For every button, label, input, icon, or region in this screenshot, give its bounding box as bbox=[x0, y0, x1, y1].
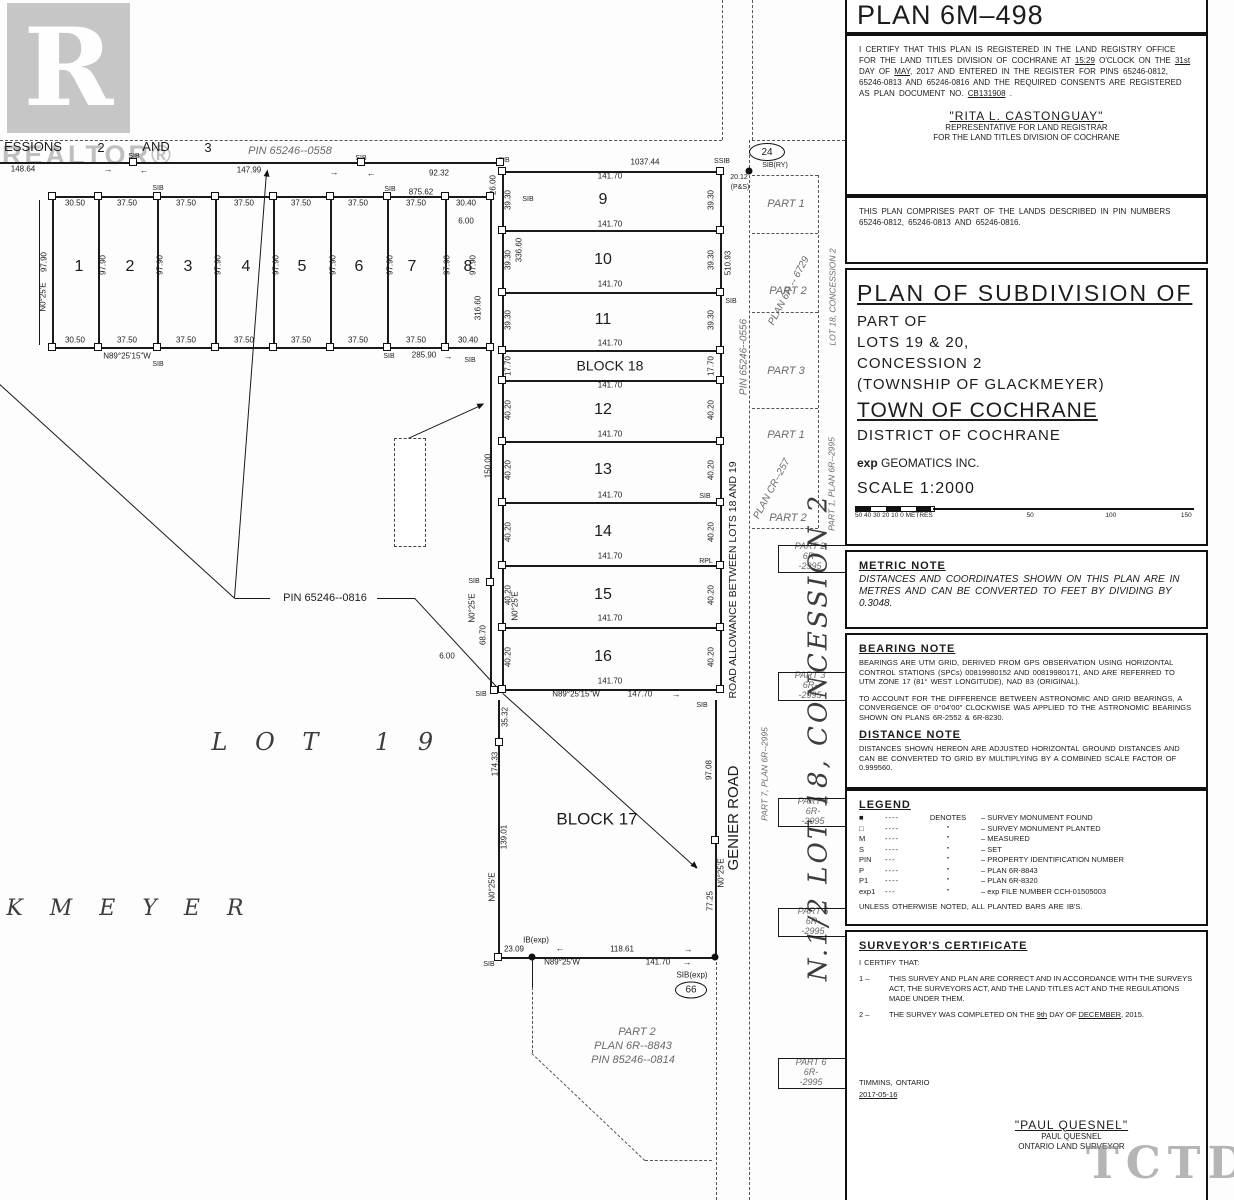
boundary-line bbox=[778, 908, 845, 909]
dimension: 37.50 bbox=[291, 200, 311, 209]
dimension: 40.20 bbox=[708, 522, 717, 542]
legend-rows: ■----DENOTES– SURVEY MONUMENT FOUND□----… bbox=[847, 813, 1206, 897]
dimension: 37.50 bbox=[176, 200, 196, 209]
dimension: 37.50 bbox=[234, 200, 254, 209]
reference-badge: 66 bbox=[675, 982, 707, 999]
dimension: 141.70 bbox=[598, 221, 622, 230]
dimension: 316.60 bbox=[475, 296, 484, 320]
dimension: 141.70 bbox=[598, 340, 622, 349]
monument-planted-marker bbox=[269, 192, 277, 200]
monument-planted-marker bbox=[94, 192, 102, 200]
part-label: PART 1 bbox=[767, 429, 805, 441]
part-label: PART 6 6R--2995 bbox=[794, 1058, 828, 1088]
monument-planted-marker bbox=[129, 158, 137, 166]
lot-number: 2 bbox=[126, 258, 135, 276]
dimension: 6.00 bbox=[439, 653, 455, 662]
dim-arrow: ← bbox=[556, 944, 565, 954]
metric-note-heading: METRIC NOTE bbox=[859, 560, 1206, 572]
dimension: 30.50 bbox=[65, 200, 85, 209]
monument-planted-marker bbox=[498, 623, 506, 631]
boundary-line bbox=[752, 140, 845, 141]
lot-number: 14 bbox=[594, 523, 612, 541]
certificate-date: 2017-05-16 bbox=[859, 1090, 939, 1100]
scale-bar: 50 40 30 20 10 0 METRES 50 100 150 bbox=[855, 504, 1198, 520]
boundary-line bbox=[157, 196, 159, 347]
monument-planted-marker bbox=[48, 192, 56, 200]
boundary-line bbox=[532, 957, 533, 987]
scale-tick: 100 bbox=[1105, 512, 1116, 519]
lot-number: 12 bbox=[594, 401, 612, 419]
leader-line bbox=[531, 1053, 645, 1161]
monument-planted-marker bbox=[716, 561, 724, 569]
boundary-line bbox=[778, 908, 779, 936]
dimension: 141.70 bbox=[598, 492, 622, 501]
dimension: 141.70 bbox=[598, 173, 622, 182]
dimension: 39.30 bbox=[505, 310, 514, 330]
dim-arrow: → bbox=[444, 352, 453, 362]
dimension: 40.20 bbox=[505, 522, 514, 542]
title-line: (TOWNSHIP OF GLACKMEYER) bbox=[857, 376, 1206, 393]
dimension: 17.70 bbox=[708, 356, 717, 376]
registrar-signature: "RITA L. CASTONGUAY" REPRESENTATIVE FOR … bbox=[847, 109, 1206, 143]
boundary-line bbox=[273, 196, 275, 347]
dimension: 40.20 bbox=[708, 400, 717, 420]
boundary-line bbox=[778, 672, 779, 700]
dimension: 6.00 bbox=[458, 218, 474, 227]
boundary-line bbox=[502, 171, 504, 689]
monument-label: SIB bbox=[699, 493, 710, 501]
monument-planted-marker bbox=[383, 192, 391, 200]
comprises-box: THIS PLAN COMPRISES PART OF THE LANDS DE… bbox=[845, 196, 1208, 264]
dimension: 68.70 bbox=[480, 625, 489, 645]
monument-planted-marker bbox=[498, 226, 506, 234]
boundary-line bbox=[495, 689, 720, 691]
monument-planted-marker bbox=[711, 836, 719, 844]
scale-bar-line bbox=[933, 508, 1194, 510]
legend-row: P----"– PLAN 6R-8843 bbox=[859, 866, 1206, 877]
monument-planted-marker bbox=[486, 192, 494, 200]
certificate-heading: SURVEYOR'S CERTIFICATE bbox=[859, 940, 1206, 952]
monument-planted-marker bbox=[326, 192, 334, 200]
boundary-line bbox=[778, 798, 845, 799]
leader-line bbox=[234, 172, 267, 598]
distance-note-heading: DISTANCE NOTE bbox=[859, 729, 1206, 741]
boundary-line bbox=[502, 441, 720, 443]
boundary-line bbox=[778, 1088, 845, 1089]
bearing-note-text: BEARINGS ARE UTM GRID, DERIVED FROM GPS … bbox=[859, 658, 1194, 687]
lot-number: 10 bbox=[594, 251, 612, 269]
dim-arrow: → bbox=[683, 958, 692, 968]
boundary-line bbox=[502, 565, 720, 567]
monument-planted-marker bbox=[495, 738, 503, 746]
dimension: 37.50 bbox=[117, 200, 137, 209]
boundary-line bbox=[716, 957, 717, 1200]
pin-label: PIN 85246--0814 bbox=[591, 1054, 675, 1066]
legend-heading: LEGEND bbox=[859, 799, 1206, 811]
legend-row: S----"– SET bbox=[859, 845, 1206, 856]
monument-label: SIB bbox=[475, 691, 486, 699]
monument-planted-marker bbox=[486, 343, 494, 351]
pin-label: PIN 65246--0558 bbox=[248, 145, 332, 157]
dimension: 141.70 bbox=[598, 615, 622, 624]
legend-row: ■----DENOTES– SURVEY MONUMENT FOUND bbox=[859, 813, 1206, 824]
block-label: BLOCK 18 bbox=[577, 358, 644, 373]
boundary-line bbox=[778, 545, 779, 572]
dim-arrow: → bbox=[104, 165, 113, 175]
boundary-line bbox=[778, 700, 845, 701]
monument-label: SSIB bbox=[714, 158, 730, 166]
boundary-line bbox=[502, 502, 720, 504]
monument-planted-marker bbox=[486, 578, 494, 586]
dimension: 141.70 bbox=[646, 959, 670, 968]
dimension: 35.32 bbox=[502, 707, 511, 727]
dimension: 147.99 bbox=[237, 167, 261, 176]
monument-planted-marker bbox=[498, 437, 506, 445]
boundary-line bbox=[235, 598, 270, 599]
scale-label: SCALE 1:2000 bbox=[857, 480, 1206, 498]
dimension: 97.90 bbox=[41, 252, 50, 272]
lot-number: 16 bbox=[594, 648, 612, 666]
dimension: 1037.44 bbox=[631, 159, 660, 168]
boundary-line bbox=[387, 196, 389, 347]
boundary-line bbox=[532, 987, 533, 1053]
dimension: 30.50 bbox=[65, 337, 85, 346]
dimension: 141.70 bbox=[598, 382, 622, 391]
leader-arrowhead bbox=[690, 861, 699, 870]
monument-planted-marker bbox=[496, 158, 504, 166]
lot-number: 4 bbox=[242, 258, 251, 276]
monument-planted-marker bbox=[498, 561, 506, 569]
boundary-line bbox=[722, 0, 723, 140]
title-line: CONCESSION 2 bbox=[857, 355, 1206, 372]
title-line: LOTS 19 & 20, bbox=[857, 334, 1206, 351]
leader-arrowhead bbox=[477, 401, 486, 409]
dimension: 141.70 bbox=[598, 553, 622, 562]
plan-number: PLAN 6M–498 bbox=[847, 0, 1206, 31]
comprises-text: THIS PLAN COMPRISES PART OF THE LANDS DE… bbox=[847, 198, 1206, 228]
boundary-line bbox=[778, 798, 779, 826]
scale-tick: 50 bbox=[1027, 512, 1034, 519]
dimension: 97.90 bbox=[100, 255, 109, 275]
title-block-box: PLAN OF SUBDIVISION OF PART OF LOTS 19 &… bbox=[845, 268, 1208, 546]
township-name: C K M E Y E R bbox=[0, 897, 253, 921]
bearing: N0°25'E bbox=[40, 282, 49, 311]
part-label: PART 7, PLAN 6R--2995 bbox=[760, 727, 769, 821]
monument-planted-marker bbox=[494, 953, 502, 961]
boundary-line bbox=[778, 572, 845, 573]
part-label: PART 1 bbox=[767, 198, 805, 210]
monument-planted-marker bbox=[498, 376, 506, 384]
road-label: ROAD ALLOWANCE BETWEEN LOTS 18 AND 19 bbox=[728, 461, 740, 698]
dimension: 37.50 bbox=[348, 337, 368, 346]
monument-planted-marker bbox=[498, 346, 506, 354]
dimension: 139.01 bbox=[501, 825, 510, 849]
bottom-right-watermark: TCTDAR bbox=[1086, 1138, 1234, 1189]
dimension: 17.70 bbox=[505, 356, 514, 376]
boundary-line bbox=[502, 380, 720, 382]
dimension: 147.70 bbox=[628, 691, 652, 700]
block-label: BLOCK 17 bbox=[556, 811, 637, 830]
lot-number: 1 bbox=[75, 258, 84, 276]
dimension: 150.00 bbox=[485, 454, 494, 478]
boundary-line bbox=[98, 196, 100, 347]
monument-planted-marker bbox=[441, 192, 449, 200]
monument-planted-marker bbox=[716, 376, 724, 384]
monument-planted-marker bbox=[498, 167, 506, 175]
monument-planted-marker bbox=[716, 226, 724, 234]
dim-arrow: ← bbox=[140, 166, 149, 176]
distance-note-text: DISTANCES SHOWN HEREON ARE ADJUSTED HORI… bbox=[859, 744, 1194, 773]
legend-box: LEGEND ■----DENOTES– SURVEY MONUMENT FOU… bbox=[845, 789, 1208, 926]
lot-number: 6 bbox=[355, 258, 364, 276]
legend-row: M----"– MEASURED bbox=[859, 834, 1206, 845]
plan-number-box: PLAN 6M–498 bbox=[845, 0, 1208, 34]
dim-arrow: ← bbox=[367, 169, 376, 179]
monument-label: SIB bbox=[152, 361, 163, 369]
monument-planted-marker bbox=[269, 343, 277, 351]
dimension: 40.20 bbox=[708, 585, 717, 605]
lot-number: 9 bbox=[599, 191, 608, 209]
dimension: 37.50 bbox=[176, 337, 196, 346]
monument-planted-marker bbox=[441, 343, 449, 351]
bearing-note-box: BEARING NOTE BEARINGS ARE UTM GRID, DERI… bbox=[845, 633, 1208, 789]
legend-footer: UNLESS OTHERWISE NOTED, ALL PLANTED BARS… bbox=[859, 902, 1194, 912]
title-panel: PLAN 6M–498 I CERTIFY THAT THIS PLAN IS … bbox=[845, 0, 1212, 1200]
monument-planted-marker bbox=[383, 343, 391, 351]
dimension: 40.20 bbox=[505, 460, 514, 480]
district-line: DISTRICT OF COCHRANE bbox=[857, 427, 1206, 444]
monument-label: SIB bbox=[464, 357, 475, 365]
lot-number: 11 bbox=[595, 311, 612, 329]
monument-label: SIB bbox=[383, 353, 394, 361]
town-title: TOWN OF COCHRANE bbox=[857, 399, 1206, 423]
monument-planted-marker bbox=[48, 343, 56, 351]
dimension: 141.70 bbox=[598, 678, 622, 687]
lot-number: 5 bbox=[298, 258, 307, 276]
certificate-item: 1 – THIS SURVEY AND PLAN ARE CORRECT AND… bbox=[859, 974, 1194, 1004]
monument-planted-marker bbox=[153, 343, 161, 351]
boundary-line bbox=[330, 196, 332, 347]
survey-plan-drawing: ESSIONS2AND3PIN 65246--0558148.64147.999… bbox=[0, 0, 845, 1200]
dim-arrow: → bbox=[672, 690, 681, 700]
leader-line bbox=[0, 384, 235, 599]
concession-road-label: 2 bbox=[97, 141, 104, 155]
monument-planted-marker bbox=[498, 685, 506, 693]
dimension: 97.90 bbox=[470, 255, 479, 275]
boundary-line bbox=[752, 175, 818, 176]
dimension: 40.20 bbox=[708, 647, 717, 667]
bearing: N0°25'E bbox=[512, 591, 521, 620]
survey-plan-page: { "watermarks": { "logo_letter": "R", "b… bbox=[0, 0, 1234, 1200]
dimension: 39.30 bbox=[708, 310, 717, 330]
scale-tick: 50 40 30 20 10 0 METRES bbox=[855, 512, 933, 519]
certificate-intro: I CERTIFY THAT: bbox=[859, 958, 1194, 968]
dimension: 39.30 bbox=[708, 250, 717, 270]
monument-planted-marker bbox=[490, 686, 498, 694]
metric-note-box: METRIC NOTE DISTANCES AND COORDINATES SH… bbox=[845, 550, 1208, 629]
scale-tick: 150 bbox=[1181, 512, 1192, 519]
boundary-line bbox=[0, 162, 502, 164]
boundary-line bbox=[752, 312, 818, 313]
dimension: 40.20 bbox=[505, 647, 514, 667]
dimension: 37.50 bbox=[291, 337, 311, 346]
boundary-line bbox=[778, 826, 845, 827]
legend-row: exp1---"– exp FILE NUMBER CCH-01505003 bbox=[859, 887, 1206, 898]
bearing-note-heading: BEARING NOTE bbox=[859, 643, 1206, 655]
concession-road-label: AND bbox=[142, 140, 169, 154]
boundary-line bbox=[720, 171, 722, 689]
concession-road-label: 3 bbox=[204, 141, 211, 155]
dimension: 141.70 bbox=[598, 431, 622, 440]
lot-name: L O T bbox=[212, 729, 329, 755]
monument-planted-marker bbox=[716, 167, 724, 175]
dimension: 510.93 bbox=[725, 251, 734, 275]
boundary-line bbox=[752, 233, 818, 234]
bearing-note-text: TO ACCOUNT FOR THE DIFFERENCE BETWEEN AS… bbox=[859, 694, 1194, 723]
monument-planted-marker bbox=[94, 343, 102, 351]
monument-planted-marker bbox=[716, 288, 724, 296]
plan-title: PLAN OF SUBDIVISION OF bbox=[857, 280, 1206, 307]
boundary-line bbox=[778, 545, 845, 546]
boundary-line bbox=[490, 196, 492, 690]
dimension: 148.64 bbox=[11, 166, 35, 175]
reference-badge: 24 bbox=[749, 143, 785, 161]
firm-name: exp GEOMATICS INC. bbox=[857, 456, 1206, 470]
boundary-line bbox=[502, 627, 720, 629]
dimension: 39.30 bbox=[505, 250, 514, 270]
dimension: 39.30 bbox=[708, 190, 717, 210]
monument-planted-marker bbox=[716, 437, 724, 445]
monument-planted-marker bbox=[153, 192, 161, 200]
dimension: 141.70 bbox=[598, 281, 622, 290]
monument-planted-marker bbox=[211, 192, 219, 200]
pin-label: PIN 65246--0556 bbox=[739, 319, 750, 395]
lot-ref: LOT 18, CONCESSION 2 bbox=[828, 248, 837, 345]
dim-arrow: → bbox=[330, 168, 339, 178]
certificate-place: TIMMINS, ONTARIO bbox=[859, 1078, 1194, 1088]
monument-label: SIB bbox=[696, 702, 707, 710]
bearing: N0°25'E bbox=[489, 872, 498, 901]
bearing: N89°25'15"W bbox=[552, 691, 600, 700]
registration-box: I CERTIFY THAT THIS PLAN IS REGISTERED I… bbox=[845, 34, 1208, 196]
boundary-line bbox=[502, 292, 720, 294]
part-label: PART 2 bbox=[769, 512, 807, 524]
boundary-line bbox=[502, 171, 720, 173]
part-label: PART 2 bbox=[618, 1026, 656, 1038]
monument-label: SIB(exp) bbox=[676, 972, 707, 981]
dimension: 336.60 bbox=[516, 238, 525, 262]
lot-number: 7 bbox=[408, 258, 417, 276]
boundary-line bbox=[215, 196, 217, 347]
monument-planted-marker bbox=[498, 498, 506, 506]
monument-planted-marker bbox=[716, 685, 724, 693]
dimension: 40.20 bbox=[505, 400, 514, 420]
legend-row: PIN---"– PROPERTY IDENTIFICATION NUMBER bbox=[859, 855, 1206, 866]
pin-label: PIN 65246--0816 bbox=[283, 592, 367, 604]
dimension: (P&S) bbox=[731, 184, 750, 192]
boundary-line bbox=[778, 672, 845, 673]
boundary-line bbox=[778, 936, 845, 937]
monument-label: IB(exp) bbox=[523, 937, 549, 946]
monument-planted-marker bbox=[357, 158, 365, 166]
leader-arrowhead bbox=[264, 169, 271, 177]
dimension: 37.50 bbox=[348, 200, 368, 209]
dimension: 37.50 bbox=[234, 337, 254, 346]
boundary-line bbox=[818, 175, 819, 528]
certificate-item: 2 – THE SURVEY WAS COMPLETED ON THE 9th … bbox=[859, 1010, 1194, 1020]
monument-found-marker bbox=[746, 168, 753, 175]
bearing: N0°25'E bbox=[469, 593, 478, 622]
monument-planted-marker bbox=[716, 498, 724, 506]
monument-planted-marker bbox=[716, 623, 724, 631]
boundary-line bbox=[502, 350, 720, 352]
boundary-line bbox=[445, 196, 447, 347]
dimension: 37.50 bbox=[406, 337, 426, 346]
monument-label: SIB bbox=[483, 961, 494, 969]
dimension: 30.40 bbox=[458, 337, 478, 346]
boundary-line bbox=[39, 200, 40, 345]
boundary-line bbox=[502, 230, 720, 232]
monument-label: SIB bbox=[522, 196, 533, 204]
monument-planted-marker bbox=[326, 343, 334, 351]
dimension: 97.08 bbox=[706, 760, 715, 780]
dimension: 23.09 bbox=[504, 946, 524, 955]
dimension: 118.61 bbox=[610, 946, 634, 955]
road-label: GENIER ROAD bbox=[726, 765, 743, 870]
bearing: N89°25'W bbox=[544, 959, 580, 968]
metric-note-text: DISTANCES AND COORDINATES SHOWN ON THIS … bbox=[859, 574, 1194, 610]
dimension: 92.32 bbox=[429, 170, 449, 179]
leader-line bbox=[408, 404, 484, 439]
lot-name: 1 9 bbox=[375, 729, 443, 755]
leader-line bbox=[502, 693, 697, 869]
boundary-line bbox=[645, 1160, 712, 1161]
part-label: PLAN 6R--8843 bbox=[594, 1040, 672, 1052]
dimension: 20.12 bbox=[730, 174, 748, 182]
boundary-line bbox=[749, 140, 750, 1200]
monument-planted-marker bbox=[498, 288, 506, 296]
boundary-line bbox=[377, 598, 415, 599]
lot-number: 15 bbox=[594, 586, 612, 604]
dim-arrow: → bbox=[684, 945, 693, 955]
boundary-line bbox=[715, 700, 717, 957]
boundary-line bbox=[52, 196, 54, 347]
monument-found-marker bbox=[712, 954, 719, 961]
monument-label: SIB bbox=[725, 298, 736, 306]
dimension: 40.20 bbox=[708, 460, 717, 480]
boundary-line bbox=[778, 1058, 779, 1088]
registration-text: I CERTIFY THAT THIS PLAN IS REGISTERED I… bbox=[847, 36, 1206, 99]
part-label: PART 3 bbox=[767, 365, 805, 377]
boundary-line bbox=[778, 1058, 845, 1059]
legend-row: □----"– SURVEY MONUMENT PLANTED bbox=[859, 824, 1206, 835]
block-19-box bbox=[394, 438, 426, 547]
bearing: N89°25'15"W bbox=[103, 353, 151, 362]
boundary-line bbox=[752, 408, 818, 409]
monument-planted-marker bbox=[211, 343, 219, 351]
dimension: 39.30 bbox=[505, 190, 514, 210]
boundary-line bbox=[0, 140, 722, 141]
dimension: 285.90 bbox=[412, 352, 436, 361]
legend-row: P1----"– PLAN 6R-8320 bbox=[859, 876, 1206, 887]
title-line: PART OF bbox=[857, 313, 1206, 330]
monument-label: SIB bbox=[468, 578, 479, 586]
concession-road-label: ESSIONS bbox=[4, 140, 62, 154]
dimension: 30.40 bbox=[456, 200, 476, 209]
monument-planted-marker bbox=[716, 346, 724, 354]
lot-number: 13 bbox=[594, 461, 612, 479]
dimension: 37.50 bbox=[117, 337, 137, 346]
